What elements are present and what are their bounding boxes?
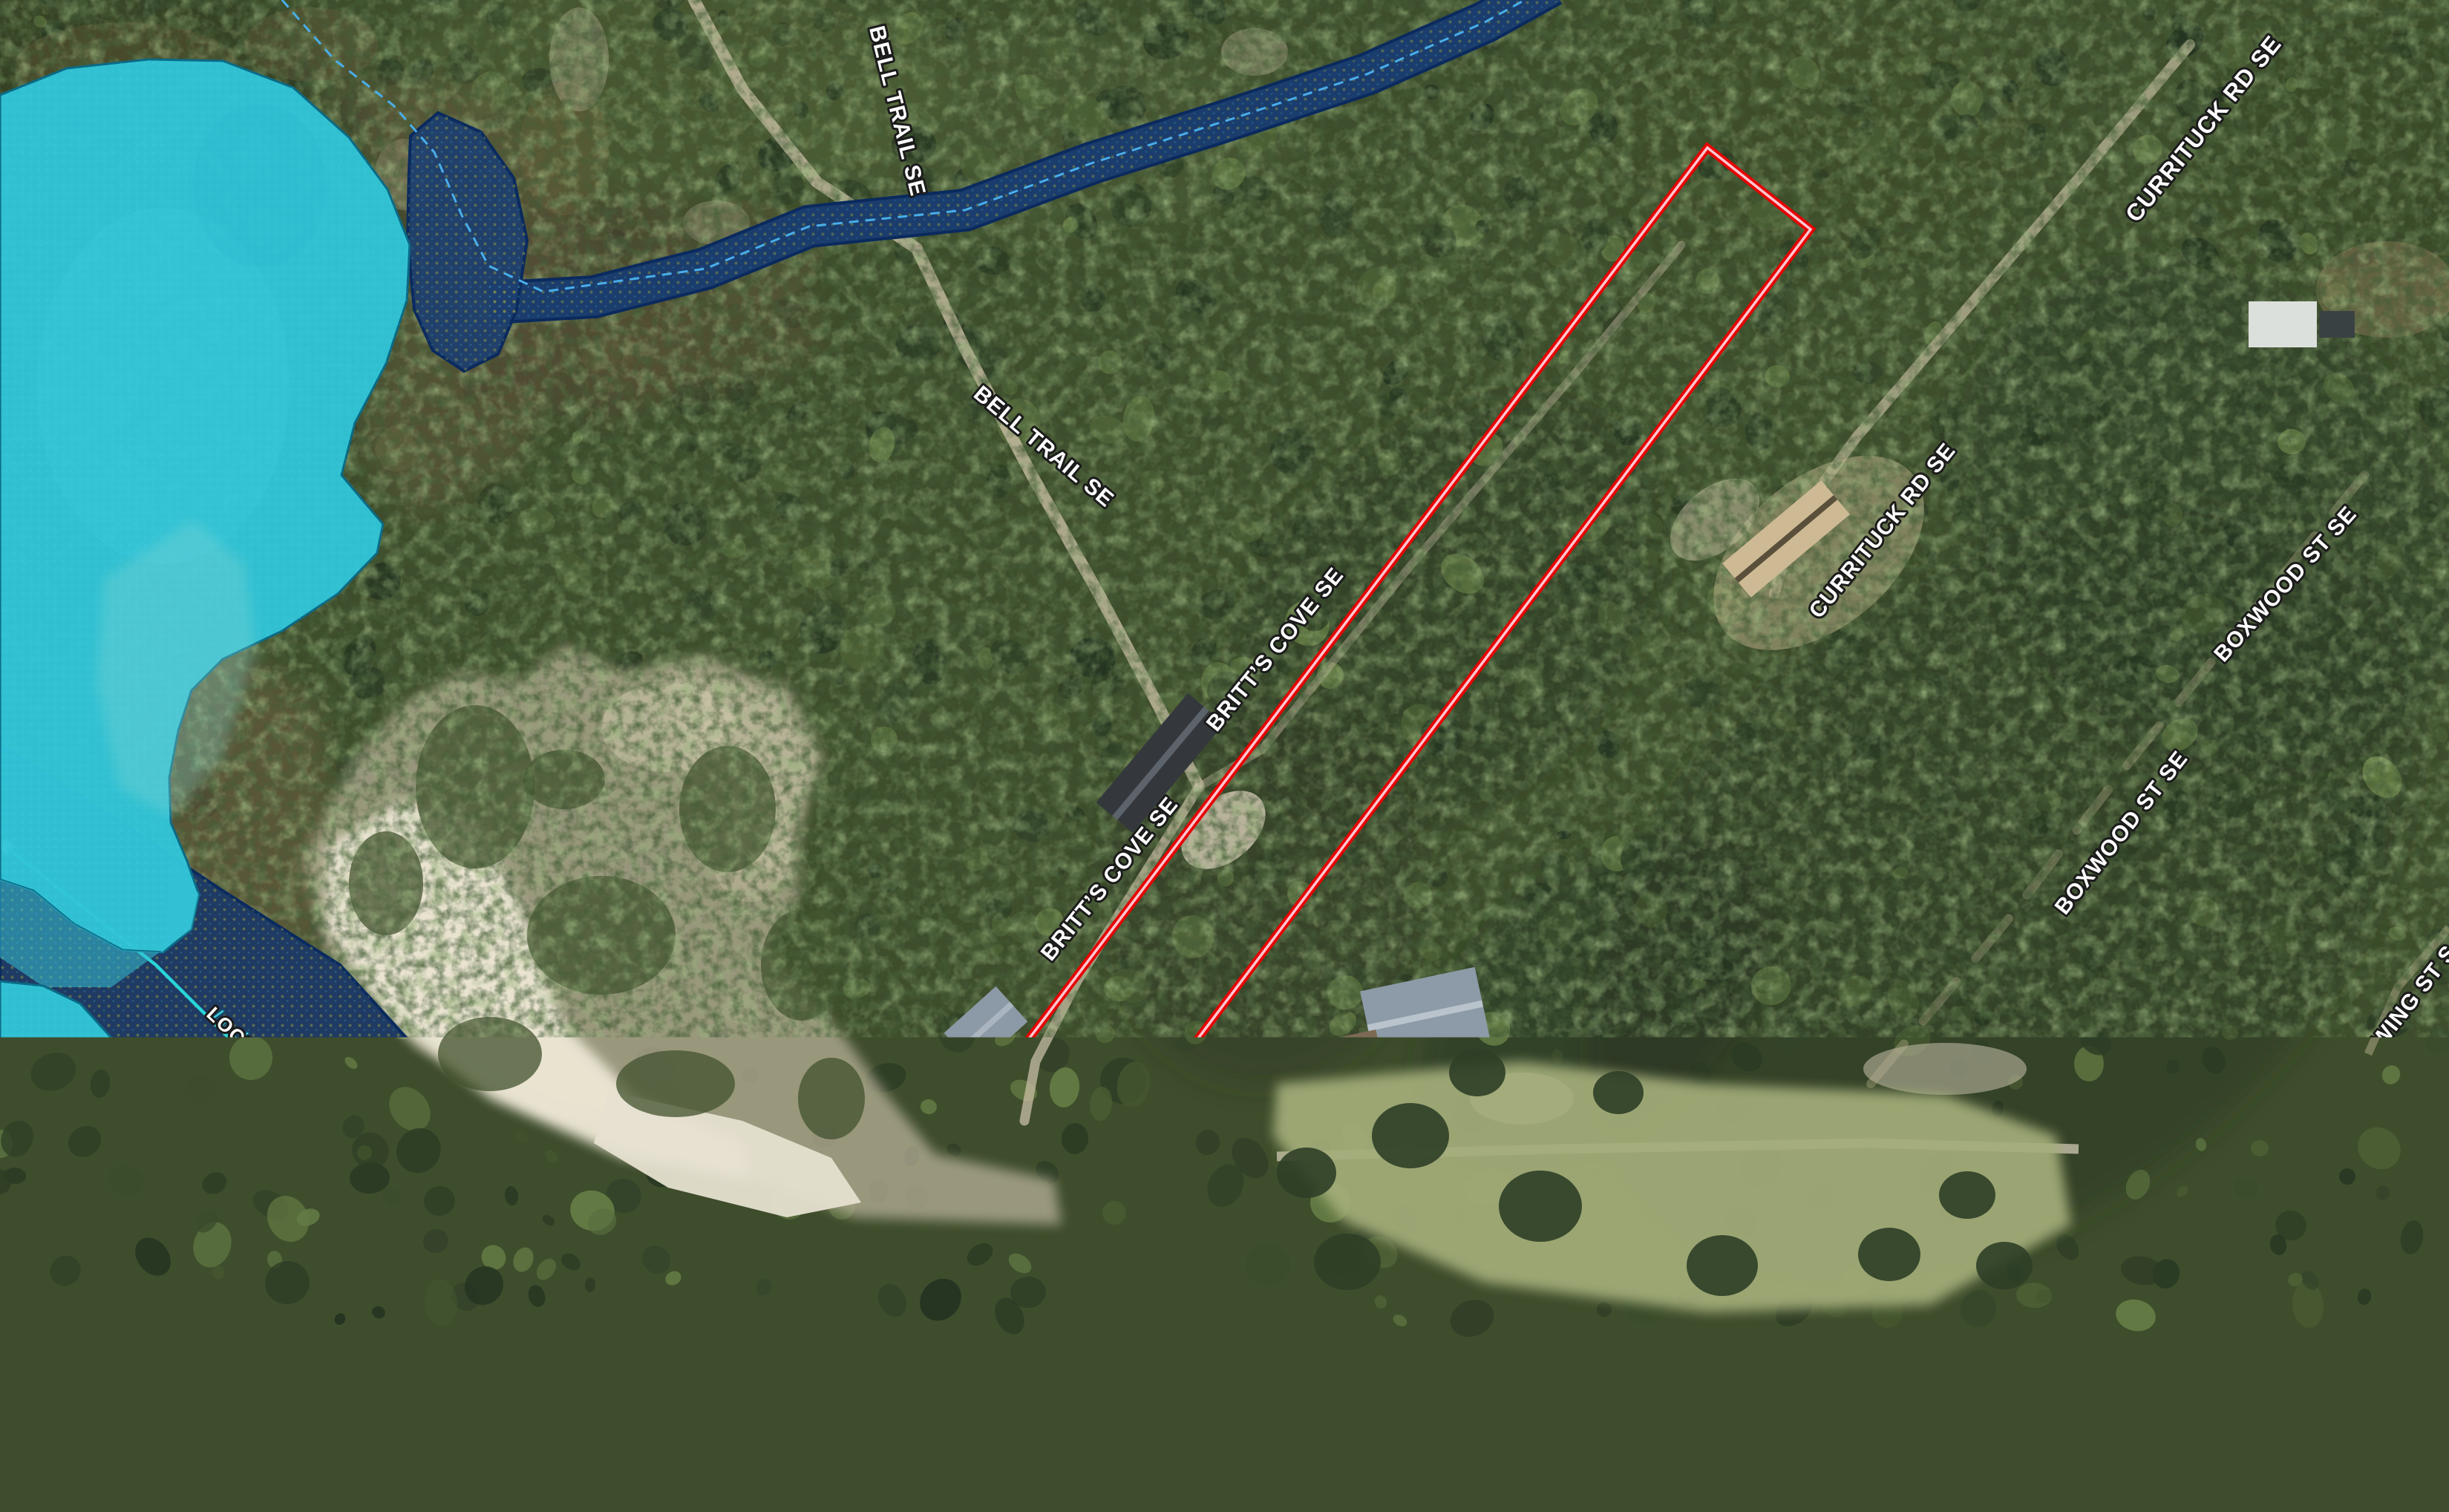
svg-text:0: 0 (1834, 1421, 1857, 1469)
svg-text:100: 100 (1945, 1421, 2015, 1469)
svg-text:400ft: 400ft (2324, 1421, 2419, 1469)
svg-text:300: 300 (2205, 1421, 2275, 1469)
svg-text:200: 200 (2076, 1421, 2147, 1469)
